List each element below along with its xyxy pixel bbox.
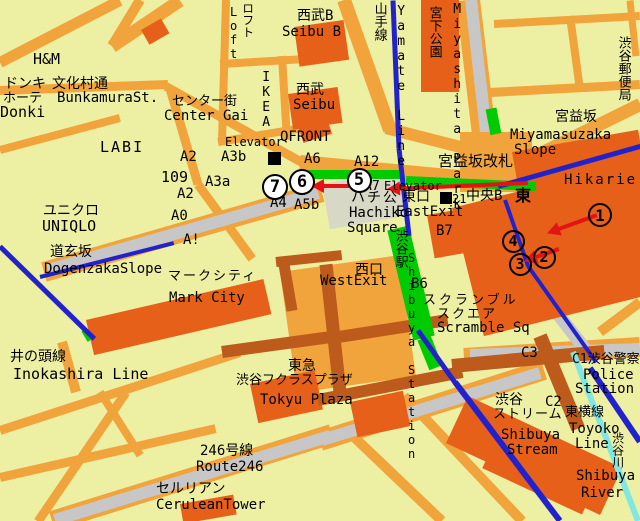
map-label: A3a bbox=[205, 175, 230, 190]
map-label: A6 bbox=[304, 152, 321, 167]
map-label: Seibu B bbox=[282, 25, 341, 40]
map-label: Shibuya bbox=[501, 428, 560, 443]
circled-number-5: 5 bbox=[347, 168, 372, 193]
circled-number-6: 6 bbox=[289, 169, 315, 195]
map-label: WestExit bbox=[320, 274, 387, 289]
map-label: Hikarie bbox=[564, 173, 637, 188]
map-label: 109 bbox=[161, 170, 188, 186]
map-label: Inokashira Line bbox=[13, 367, 148, 383]
map-label: マークシティ bbox=[168, 270, 257, 284]
map-label: IKEA bbox=[259, 70, 273, 130]
map-label: QFRONT bbox=[280, 130, 331, 145]
map-label: 東口 bbox=[402, 190, 430, 205]
map-label: Scramble Sq bbox=[437, 321, 530, 336]
map-label: 東横線 bbox=[565, 406, 604, 420]
map-label: A! bbox=[183, 233, 200, 248]
map-label: Tokyu Plaza bbox=[260, 393, 353, 408]
circled-number-2: 2 bbox=[533, 246, 556, 269]
map-label: C3 bbox=[521, 346, 538, 361]
map-label: 246号線 bbox=[200, 444, 253, 459]
map-label: Loft bbox=[227, 5, 240, 61]
map-label: Station bbox=[575, 382, 634, 397]
station-marker bbox=[268, 152, 281, 165]
map-label: 渋谷フクラスプラザ bbox=[236, 374, 353, 388]
map-label: Miyamasuzaka bbox=[510, 128, 611, 143]
map-label: 道玄坂 bbox=[50, 245, 92, 260]
map-label: Elevator bbox=[225, 136, 283, 149]
map-label: 山手線 bbox=[372, 2, 386, 41]
map-label: A2 bbox=[180, 150, 197, 165]
map-label: 西武B bbox=[297, 9, 333, 24]
map-label: Shibuya Station bbox=[405, 251, 418, 461]
map-label: B7 bbox=[436, 224, 453, 239]
map-label: A5b bbox=[294, 198, 319, 213]
map-label: 東 bbox=[515, 188, 531, 205]
road-segment bbox=[0, 0, 123, 67]
map-label: Route246 bbox=[196, 460, 263, 475]
map-label: 宮益坂 bbox=[555, 110, 597, 125]
map-label: ロフト bbox=[241, 2, 254, 38]
map-label: Miyashita Park bbox=[450, 2, 464, 212]
road-segment bbox=[352, 434, 446, 521]
map-label: Center Gai bbox=[164, 109, 248, 124]
map-label: 渋谷郵便局 bbox=[616, 36, 630, 101]
map-label: DogenzakaSlope bbox=[44, 262, 162, 277]
map-label: A3b bbox=[221, 150, 246, 165]
road-segment bbox=[337, 0, 396, 132]
map-label: CeruleanTower bbox=[156, 498, 266, 513]
map-label: A2 bbox=[177, 187, 194, 202]
map-label: ハチ公 bbox=[351, 191, 399, 206]
map-label: スクランブル bbox=[423, 294, 519, 308]
map-label: 渋谷川 bbox=[611, 432, 624, 468]
circled-number-4: 4 bbox=[502, 230, 525, 253]
map-label: LABI bbox=[100, 140, 144, 156]
map-label: BunkamuraSt. bbox=[57, 91, 158, 106]
map-label: センター街 bbox=[172, 95, 237, 109]
map-label: 西武 bbox=[296, 83, 324, 98]
map-label: UNIQLO bbox=[42, 219, 96, 235]
map-label: Square bbox=[347, 221, 398, 236]
map-label: セルリアン bbox=[156, 482, 225, 497]
map-label: A0 bbox=[171, 209, 188, 224]
map-label: 渋谷 bbox=[495, 393, 523, 408]
map-label: ストリーム bbox=[493, 408, 563, 422]
road-segment bbox=[566, 15, 584, 90]
map-label: River bbox=[581, 486, 623, 501]
map-label: Seibu bbox=[293, 98, 335, 113]
map-canvas: H&Mドンキ文化村通ホーテBunkamuraSt.センター街DonkiCente… bbox=[0, 0, 640, 521]
map-label: Donki bbox=[0, 105, 45, 121]
map-label: 東急 bbox=[288, 359, 316, 374]
map-label: Slope bbox=[514, 143, 556, 158]
map-label: Yamate Line bbox=[394, 4, 408, 169]
arrow-shaft bbox=[322, 184, 350, 188]
map-label: Line bbox=[575, 437, 609, 452]
circled-number-7: 7 bbox=[262, 174, 288, 200]
map-label: H&M bbox=[33, 52, 60, 68]
map-label: Mark City bbox=[169, 291, 245, 306]
circled-number-3: 3 bbox=[509, 253, 532, 276]
map-label: 中央B bbox=[466, 189, 502, 204]
map-label: C1渋谷警察 bbox=[572, 353, 640, 367]
map-label: 井の頭線 bbox=[10, 350, 66, 365]
map-label: Stream bbox=[507, 443, 558, 458]
map-label: ドンキ bbox=[4, 77, 46, 92]
map-label: Shibuya bbox=[576, 469, 635, 484]
map-label: 宮下公園 bbox=[427, 6, 441, 58]
circled-number-1: 1 bbox=[588, 203, 612, 227]
